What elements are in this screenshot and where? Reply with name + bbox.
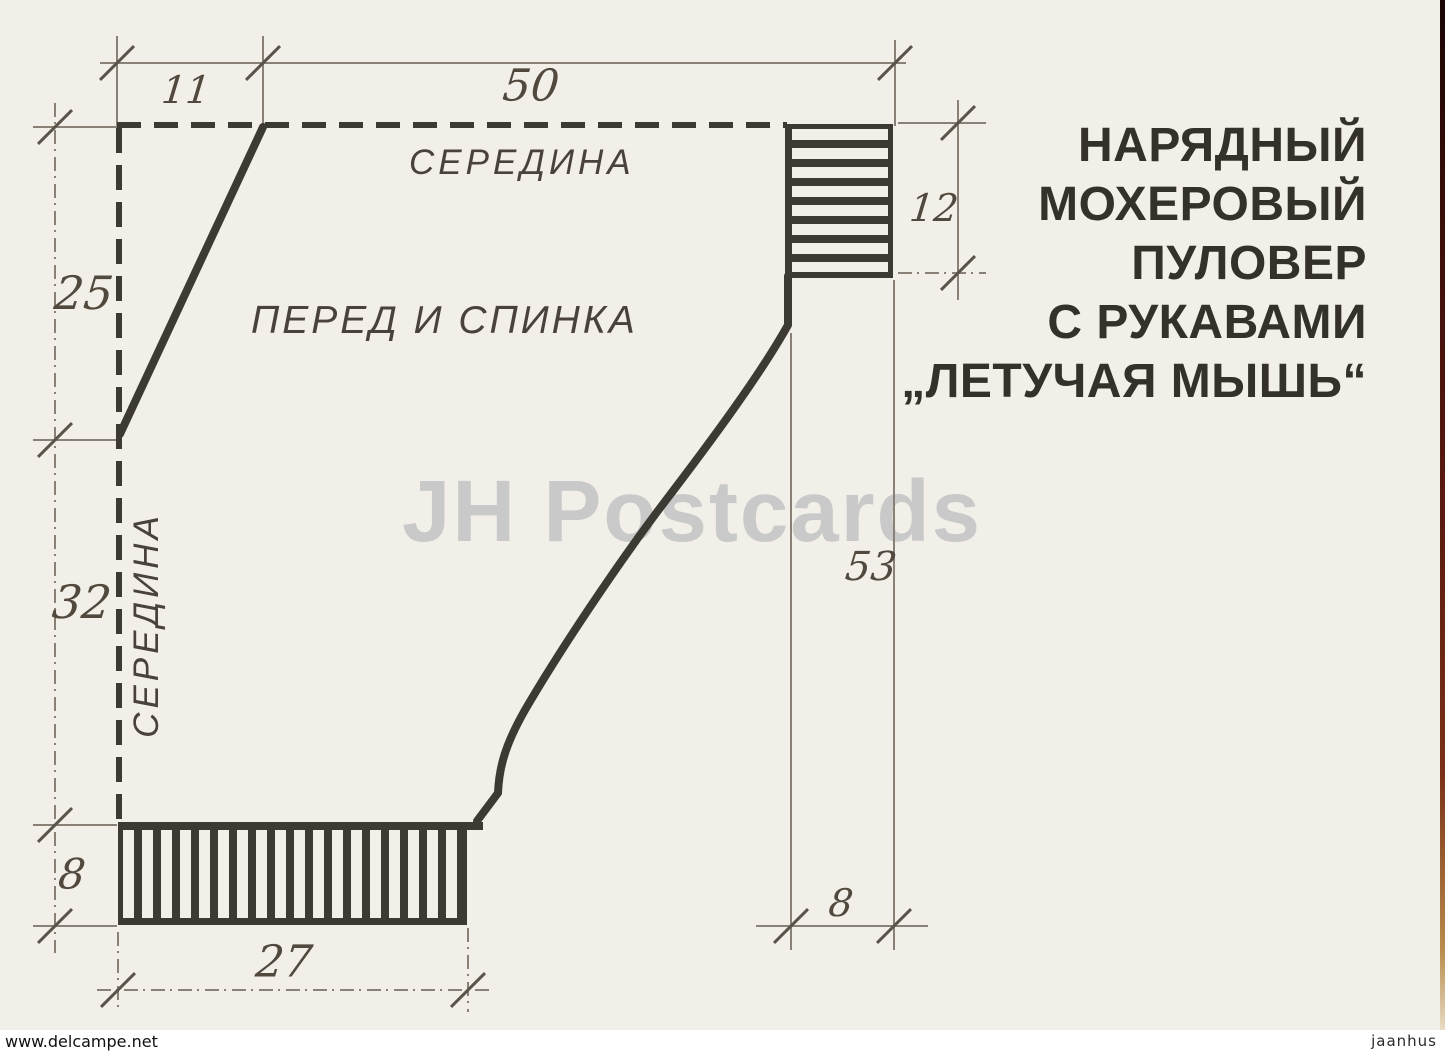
bottom-hem-ribbing-edge <box>457 822 483 830</box>
footer-watermark-url: www.delcampe.net <box>5 1032 158 1051</box>
sleeve-cuff-ribbing <box>785 124 893 278</box>
dim-top-width: 50 <box>500 61 561 112</box>
title-block: НАРЯДНЫЙ МОХЕРОВЫЙ ПУЛОВЕР С РУКАВАМИ „Л… <box>901 116 1367 411</box>
title-line-2: МОХЕРОВЫЙ <box>901 175 1367 234</box>
title-line-3: ПУЛОВЕР <box>901 234 1367 293</box>
title-line-4: С РУКАВАМИ <box>901 293 1367 352</box>
dim-side-length: 32 <box>50 575 114 629</box>
title-line-1: НАРЯДНЫЙ <box>901 116 1367 175</box>
dim-neck-width: 11 <box>160 68 213 112</box>
footer-strip <box>0 1030 1445 1051</box>
label-center-top: СЕРЕДИНА <box>409 143 635 183</box>
dim-neck-depth: 25 <box>52 266 116 320</box>
label-piece: ПЕРЕД И СПИНКА <box>251 299 638 343</box>
dim-hem-height: 8 <box>56 850 88 899</box>
postcard-scan: JH Postcards 11 50 <box>0 0 1445 1051</box>
scan-edge-strip <box>1440 0 1445 1032</box>
center-fold-dashed-line-top <box>117 122 787 128</box>
footer-seller-name: jaanhus <box>1371 1032 1437 1050</box>
bottom-hem-ribbing <box>118 822 467 925</box>
dim-sleeve-length: 53 <box>843 544 899 590</box>
title-line-5: „ЛЕТУЧАЯ МЫШЬ“ <box>901 352 1367 411</box>
center-fold-dashed-line-left <box>116 128 122 824</box>
dim-cuff-height: 8 <box>827 881 856 925</box>
label-center-left: СЕРЕДИНА <box>127 512 167 738</box>
dim-hem-width: 27 <box>253 937 314 988</box>
